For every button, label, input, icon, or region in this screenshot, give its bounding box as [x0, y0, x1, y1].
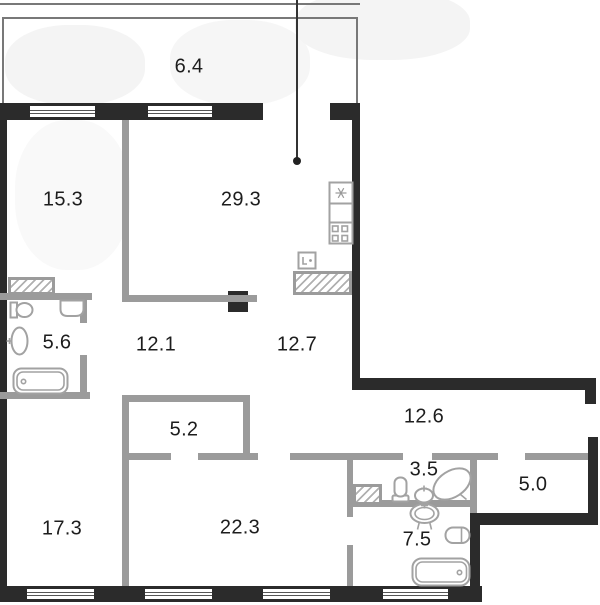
room-area-label-balcony: 6.4	[175, 56, 204, 79]
pedestal-sink-icon	[411, 503, 439, 530]
small-basin-icon	[415, 486, 433, 503]
room-area-label-wc: 3.5	[410, 459, 439, 482]
room-area-label-hallway-right: 12.7	[277, 334, 317, 357]
room-area-label-corridor: 12.6	[404, 406, 444, 429]
fridge-icon	[330, 183, 353, 204]
washbasin-icon	[7, 328, 28, 355]
kitchen-sink-icon	[299, 253, 316, 269]
floor-plan: 6.4 15.3 29.3 5.6 12.1 12.7 12.6 5.2 3.5…	[0, 0, 600, 605]
room-area-label-bathroom-right: 7.5	[403, 529, 432, 552]
toilet-icon	[11, 303, 33, 318]
bathtub-icon	[14, 369, 68, 394]
toilet-icon	[393, 478, 409, 502]
bathtub-icon	[413, 559, 470, 586]
room-area-label-bathroom-left: 5.6	[43, 332, 72, 355]
room-area-label-wardrobe: 5.2	[170, 419, 199, 442]
room-area-label-bedroom-bottom-left: 17.3	[42, 518, 82, 541]
water-heater-icon	[446, 528, 470, 544]
fixtures-layer	[0, 0, 600, 605]
room-area-label-storage: 5.0	[519, 474, 548, 497]
room-area-label-living-kitchen: 29.3	[221, 189, 261, 212]
corner-sink-icon	[61, 301, 84, 317]
room-area-label-bedroom-bottom-mid: 22.3	[220, 517, 260, 540]
kitchen-counter	[330, 204, 353, 223]
room-area-label-bedroom-top: 15.3	[43, 189, 83, 212]
stove-icon	[330, 223, 353, 244]
room-area-label-hallway-left: 12.1	[136, 334, 176, 357]
